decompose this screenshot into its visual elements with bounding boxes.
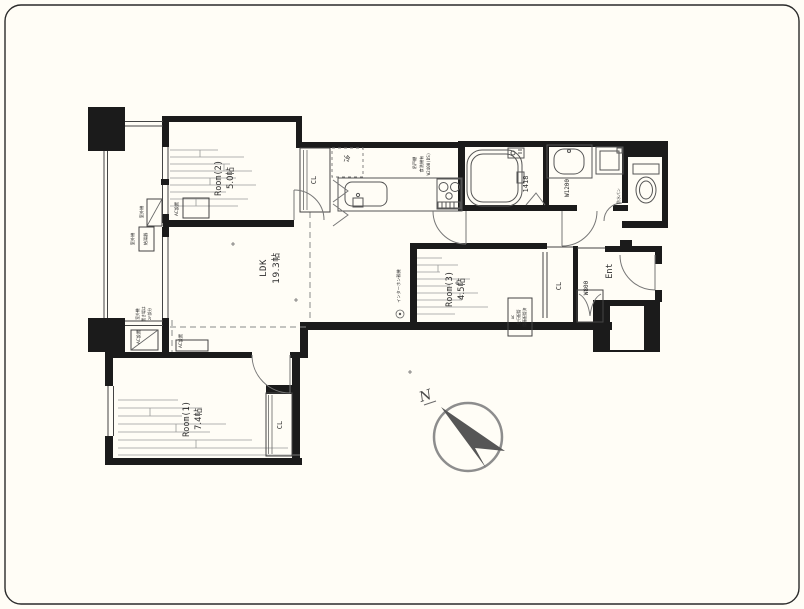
ac-piping-2: 先行配管 (516, 309, 521, 324)
room3-size-label: 4.5帖 (456, 277, 467, 300)
outdoor-unit-label-mid: 室外機 (129, 232, 136, 245)
refrigerator-label: 冷 (344, 154, 351, 163)
room1-name-label: Room(1) (182, 401, 192, 437)
room2-name-label: Room(2) (214, 160, 224, 196)
outdoor-note-2: 置き場は (141, 306, 146, 321)
floorplan-canvas: Room(2) 5.0帖 LDK 19.3帖 Room(3) 4.5帖 Room… (0, 0, 804, 609)
pipe-space (610, 306, 644, 350)
kitchen-closet-label: CL (310, 176, 318, 184)
room3-closet-label: CL (555, 282, 563, 290)
entrance-label: Ent (605, 263, 615, 278)
intercom-icon-dot (399, 313, 401, 315)
washer-pan-label: 防水パン (616, 188, 621, 204)
floorplan-svg: Room(2) 5.0帖 LDK 19.3帖 Room(3) 4.5帖 Room… (0, 0, 804, 609)
ldk-size-label: 19.3帖 (270, 252, 282, 284)
bath-size-label: 1418 (522, 176, 530, 193)
outdoor-note-1: 室外機 (135, 308, 140, 320)
kitchen-spec-3: 吊戸棚 (411, 157, 418, 170)
outdoor-unit-label-top: 室外機 (138, 205, 145, 218)
ac-piping-3: 隠蔽配管済 (522, 307, 527, 326)
kitchen-spec-2: 食洗機有 (418, 156, 425, 173)
ac-install-label-room2: AC設置 (173, 202, 180, 216)
kitchen-spec-1: W2400(DS) (426, 153, 431, 176)
water-heater-label: 給湯器 (142, 232, 149, 245)
room2-size-label: 5.0帖 (225, 166, 236, 189)
structure-block-top-left (88, 107, 125, 151)
room1-closet-label: CL (276, 421, 284, 429)
outdoor-note-3: 2F部分 (147, 308, 152, 320)
ac-install-label-ldk: AC設置 (177, 334, 184, 348)
ac-install-label-room1: AC設置 (135, 330, 142, 344)
ac-piping-1: AC (510, 315, 515, 320)
page-background (0, 0, 804, 609)
room3-name-label: Room(3) (445, 271, 455, 307)
ldk-name-label: LDK (259, 259, 269, 277)
structure-block-left (88, 318, 125, 352)
vanity-width-label: W1200 (564, 179, 571, 197)
intercom-label: インターホン親機 (395, 268, 402, 302)
room1-size-label: 7.4帖 (193, 407, 204, 430)
shoe-cabinet-width-label: W800 (583, 280, 590, 295)
